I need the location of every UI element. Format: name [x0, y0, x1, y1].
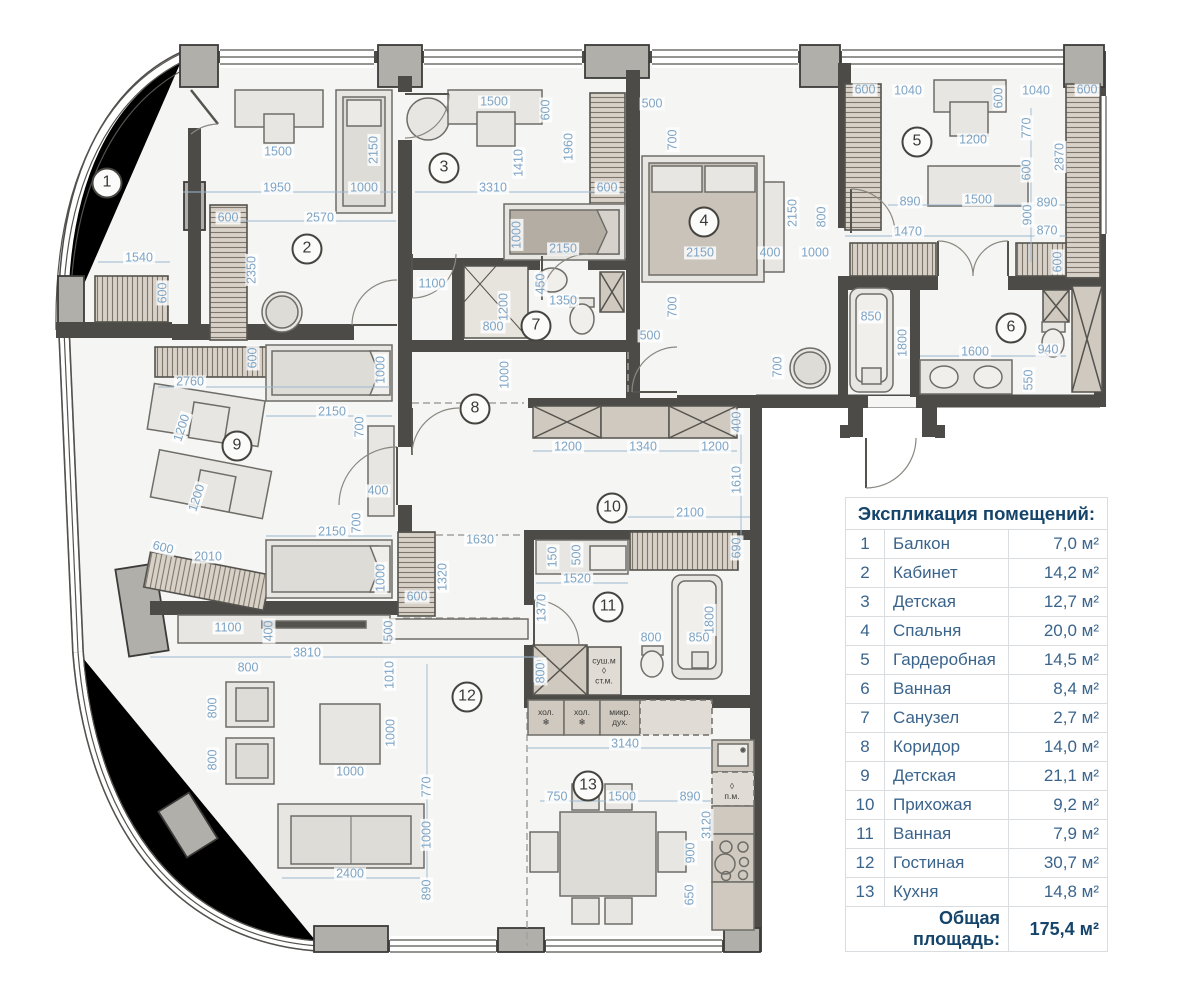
legend-area: 7,0 м² [1009, 530, 1108, 559]
legend-area: 2,7 м² [1009, 704, 1108, 733]
legend-num: 5 [846, 646, 885, 675]
legend-area: 7,9 м² [1009, 820, 1108, 849]
legend-total-label: Общая площадь: [846, 907, 1009, 952]
legend-name: Ванная [885, 675, 1009, 704]
floor-plan-page: 1540600150019501000215025706002350150060… [0, 0, 1181, 1000]
legend-num: 1 [846, 530, 885, 559]
legend-num: 3 [846, 588, 885, 617]
legend-area: 21,1 м² [1009, 762, 1108, 791]
legend-row: 3Детская12,7 м² [846, 588, 1108, 617]
legend-name: Детская [885, 762, 1009, 791]
legend-name: Балкон [885, 530, 1009, 559]
legend-name: Гардеробная [885, 646, 1009, 675]
legend-area: 14,0 м² [1009, 733, 1108, 762]
legend-area: 12,7 м² [1009, 588, 1108, 617]
legend-area: 14,2 м² [1009, 559, 1108, 588]
legend-num: 7 [846, 704, 885, 733]
legend-row: 5Гардеробная14,5 м² [846, 646, 1108, 675]
legend-row: 2Кабинет14,2 м² [846, 559, 1108, 588]
legend-row: 8Коридор14,0 м² [846, 733, 1108, 762]
legend-area: 9,2 м² [1009, 791, 1108, 820]
legend-row: 13Кухня14,8 м² [846, 878, 1108, 907]
legend-area: 30,7 м² [1009, 849, 1108, 878]
legend-num: 8 [846, 733, 885, 762]
legend-row: 10Прихожая9,2 м² [846, 791, 1108, 820]
legend-row: 4Спальня20,0 м² [846, 617, 1108, 646]
legend-table: Экспликация помещений: 1Балкон7,0 м²2Каб… [845, 497, 1108, 952]
legend-row: 11Ванная7,9 м² [846, 820, 1108, 849]
legend-title: Экспликация помещений: [846, 498, 1108, 530]
legend-name: Кабинет [885, 559, 1009, 588]
legend-area: 14,8 м² [1009, 878, 1108, 907]
legend-area: 20,0 м² [1009, 617, 1108, 646]
legend-row: 6Ванная8,4 м² [846, 675, 1108, 704]
legend-row: 12Гостиная30,7 м² [846, 849, 1108, 878]
legend-row: 7Санузел2,7 м² [846, 704, 1108, 733]
legend-name: Коридор [885, 733, 1009, 762]
legend-num: 10 [846, 791, 885, 820]
legend-name: Прихожая [885, 791, 1009, 820]
legend-total-value: 175,4 м² [1009, 907, 1108, 952]
legend-num: 9 [846, 762, 885, 791]
room4-furniture [642, 156, 784, 282]
legend-name: Санузел [885, 704, 1009, 733]
legend-num: 2 [846, 559, 885, 588]
legend-num: 13 [846, 878, 885, 907]
legend-num: 11 [846, 820, 885, 849]
legend-name: Спальня [885, 617, 1009, 646]
legend-name: Детская [885, 588, 1009, 617]
legend-area: 8,4 м² [1009, 675, 1108, 704]
legend-area: 14,5 м² [1009, 646, 1108, 675]
legend-row: 9Детская21,1 м² [846, 762, 1108, 791]
legend-name: Ванная [885, 820, 1009, 849]
legend-name: Гостиная [885, 849, 1009, 878]
legend-num: 4 [846, 617, 885, 646]
legend-name: Кухня [885, 878, 1009, 907]
legend-num: 12 [846, 849, 885, 878]
legend-row: 1Балкон7,0 м² [846, 530, 1108, 559]
legend-num: 6 [846, 675, 885, 704]
